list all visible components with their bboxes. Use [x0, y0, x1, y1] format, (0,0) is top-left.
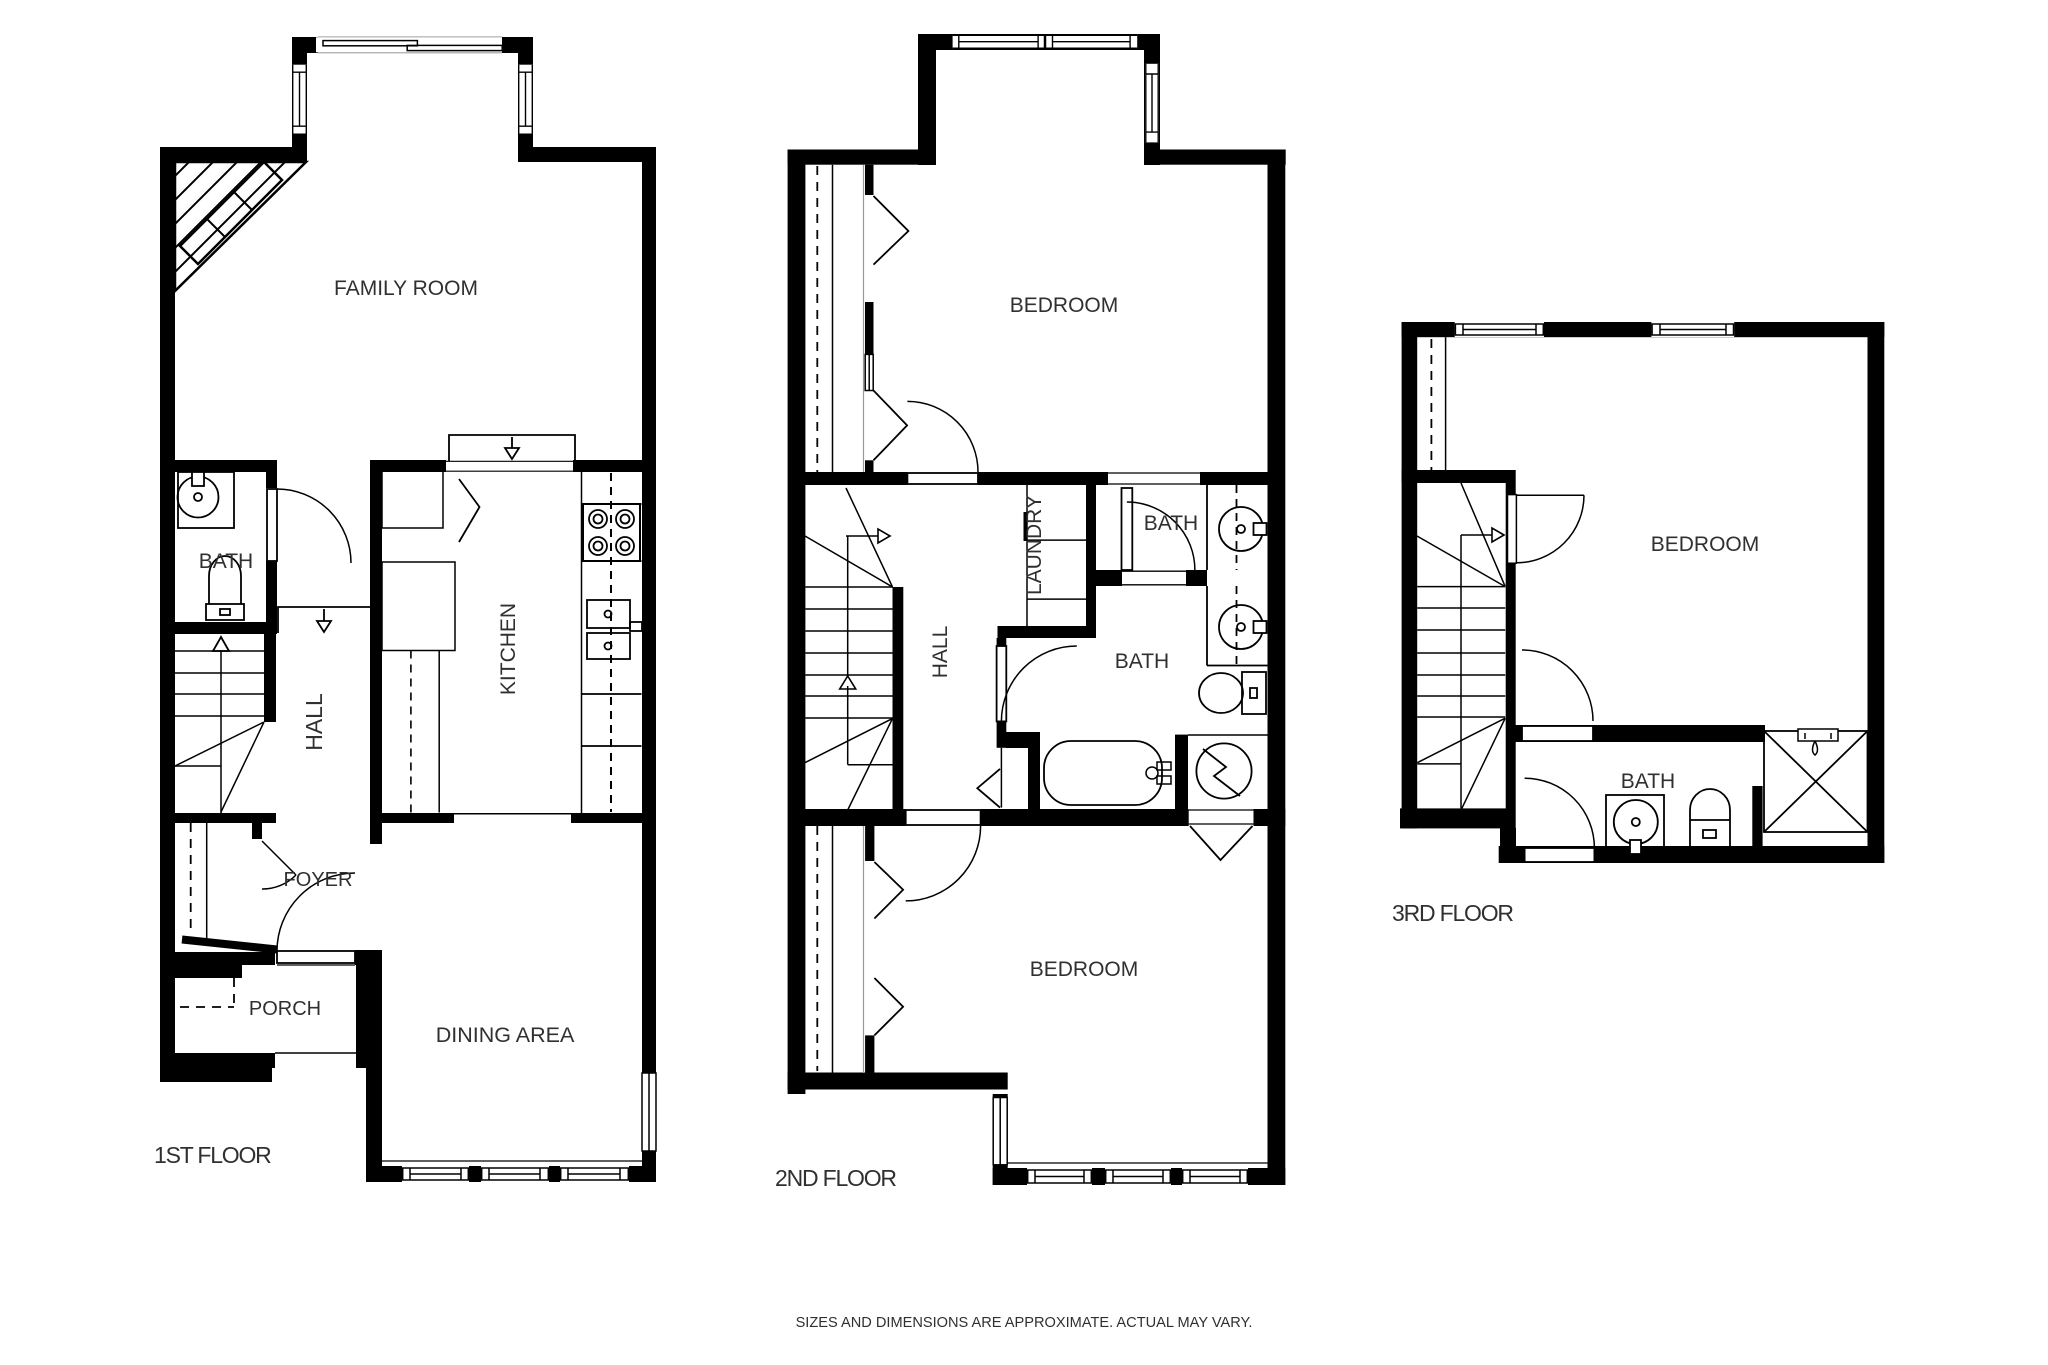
svg-text:DINING AREA: DINING AREA [436, 1023, 575, 1047]
svg-text:FOYER: FOYER [284, 869, 353, 891]
svg-text:BEDROOM: BEDROOM [1010, 294, 1119, 317]
svg-text:BEDROOM: BEDROOM [1651, 533, 1760, 556]
svg-text:BATH: BATH [199, 550, 253, 573]
svg-text:FAMILY ROOM: FAMILY ROOM [334, 277, 478, 300]
svg-text:SIZES AND DIMENSIONS ARE APPRO: SIZES AND DIMENSIONS ARE APPROXIMATE. AC… [796, 1315, 1253, 1331]
svg-text:HALL: HALL [929, 626, 952, 679]
svg-text:BATH: BATH [1144, 512, 1198, 535]
svg-text:BEDROOM: BEDROOM [1030, 958, 1139, 981]
svg-text:LAUNDRY: LAUNDRY [1023, 495, 1046, 595]
svg-text:1ST FLOOR: 1ST FLOOR [154, 1142, 271, 1168]
svg-text:KITCHEN: KITCHEN [497, 603, 520, 695]
svg-text:HALL: HALL [301, 693, 327, 751]
svg-text:PORCH: PORCH [249, 998, 321, 1020]
svg-text:BATH: BATH [1621, 770, 1675, 793]
svg-text:3RD FLOOR: 3RD FLOOR [1392, 900, 1513, 926]
svg-text:2ND FLOOR: 2ND FLOOR [775, 1165, 896, 1191]
svg-text:BATH: BATH [1115, 650, 1169, 673]
